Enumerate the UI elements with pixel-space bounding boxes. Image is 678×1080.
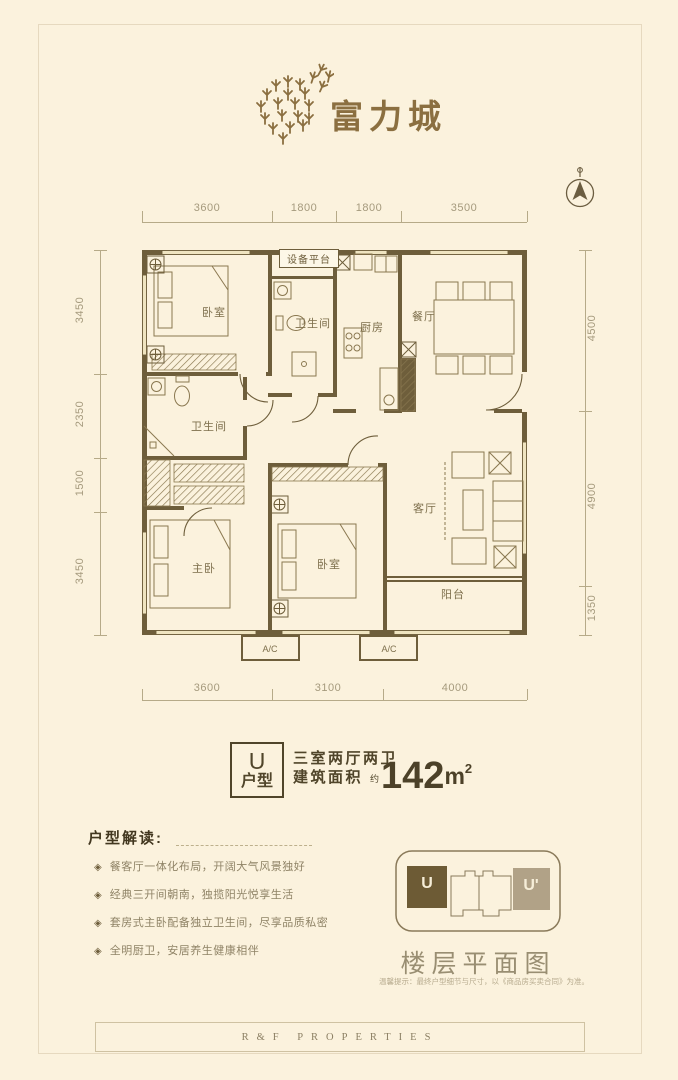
floor-plan-drawing: [142, 250, 527, 665]
interpretation-underline: [176, 845, 312, 846]
bullet-text: 套房式主卧配备独立卫生间，尽享品质私密: [110, 917, 329, 930]
area-unit: m: [444, 763, 464, 792]
room-label-bathroom-top: 卫生间: [295, 315, 331, 331]
compass-icon: [560, 164, 600, 214]
bullet-text: 全明厨卫，安居养生健康相伴: [110, 945, 260, 958]
area-exponent: 2: [465, 761, 472, 776]
room-label-kitchen: 厨房: [360, 319, 384, 335]
area-label: 建筑面积: [293, 766, 363, 792]
brand-logo: 富力城: [250, 60, 470, 152]
bullet-item: ◈ 经典三开间朝南，独揽阳光悦享生活: [94, 889, 364, 902]
mini-plan-note: 温馨提示：最终户型细节与尺寸，以《商品房买卖合同》为准。: [379, 976, 589, 987]
bullet-text: 经典三开间朝南，独揽阳光悦享生活: [110, 889, 294, 902]
dim-top-4: 3500: [451, 202, 477, 214]
dim-top-3: 1800: [356, 202, 382, 214]
mini-unit-u-prime: U': [511, 877, 551, 895]
diamond-icon: ◈: [94, 917, 102, 930]
mini-plan-caption: 楼层平面图: [373, 944, 583, 980]
dim-right-3: 1350: [586, 586, 598, 630]
room-label-bedroom-mid: 卧室: [317, 556, 341, 572]
wardrobes: [144, 354, 415, 506]
diamond-icon: ◈: [94, 889, 102, 902]
dim-top-2: 1800: [291, 202, 317, 214]
walls: [142, 250, 527, 635]
area-approx: 约: [363, 772, 381, 792]
dim-top-1: 3600: [194, 202, 220, 214]
floorplan-page: 富力城 3600 1800 1800 3500 3600 3100 4000: [0, 0, 678, 1080]
doors: [184, 374, 522, 536]
interpretation-bullets: ◈ 餐客厅一体化布局，开阔大气风景独好 ◈ 经典三开间朝南，独揽阳光悦享生活 ◈…: [94, 861, 364, 973]
room-label-master-bedroom: 主卧: [192, 560, 216, 576]
room-label-bathroom-left: 卫生间: [191, 418, 227, 434]
interpretation-title: 户型解读:: [88, 827, 163, 848]
room-label-living-room: 客厅: [413, 500, 437, 516]
dim-left-3: 1500: [74, 461, 86, 505]
bullet-text: 餐客厅一体化布局，开阔大气风景独好: [110, 861, 306, 874]
bullet-item: ◈ 套房式主卧配备独立卫生间，尽享品质私密: [94, 917, 364, 930]
room-label-balcony: 阳台: [441, 586, 465, 602]
dim-right-1: 4500: [586, 306, 598, 350]
room-label-ac-right: A/C: [381, 644, 396, 654]
unit-type-box: U 户型: [230, 742, 284, 798]
footer-brand: R&F PROPERTIES: [242, 1032, 439, 1043]
room-label-equipment-platform: 设备平台: [279, 249, 339, 268]
dim-bottom-2: 3100: [315, 682, 341, 694]
dim-bottom-1: 3600: [194, 682, 220, 694]
unit-word: 户型: [241, 773, 273, 791]
dim-left-2: 2350: [74, 392, 86, 436]
room-label-dining: 餐厅: [412, 308, 436, 324]
diamond-icon: ◈: [94, 861, 102, 874]
unit-letter: U: [249, 750, 266, 773]
diamond-icon: ◈: [94, 945, 102, 958]
dim-right-2: 4900: [586, 474, 598, 518]
mini-floor-plan: U U': [393, 848, 563, 936]
brand-name: 富力城: [330, 90, 447, 138]
bullet-item: ◈ 全明厨卫，安居养生健康相伴: [94, 945, 364, 958]
dim-bottom-3: 4000: [442, 682, 468, 694]
mini-unit-u: U: [407, 875, 447, 893]
room-label-bedroom-top: 卧室: [202, 304, 226, 320]
dim-left-1: 3450: [74, 288, 86, 332]
bullet-item: ◈ 餐客厅一体化布局，开阔大气风景独好: [94, 861, 364, 874]
footer-band: R&F PROPERTIES: [95, 1022, 585, 1052]
room-label-ac-left: A/C: [262, 644, 277, 654]
dim-left-4: 3450: [74, 549, 86, 593]
area-row: 建筑面积 约 142 m 2: [293, 760, 472, 792]
dandelion-icon: [250, 60, 334, 150]
area-value: 142: [381, 760, 444, 792]
